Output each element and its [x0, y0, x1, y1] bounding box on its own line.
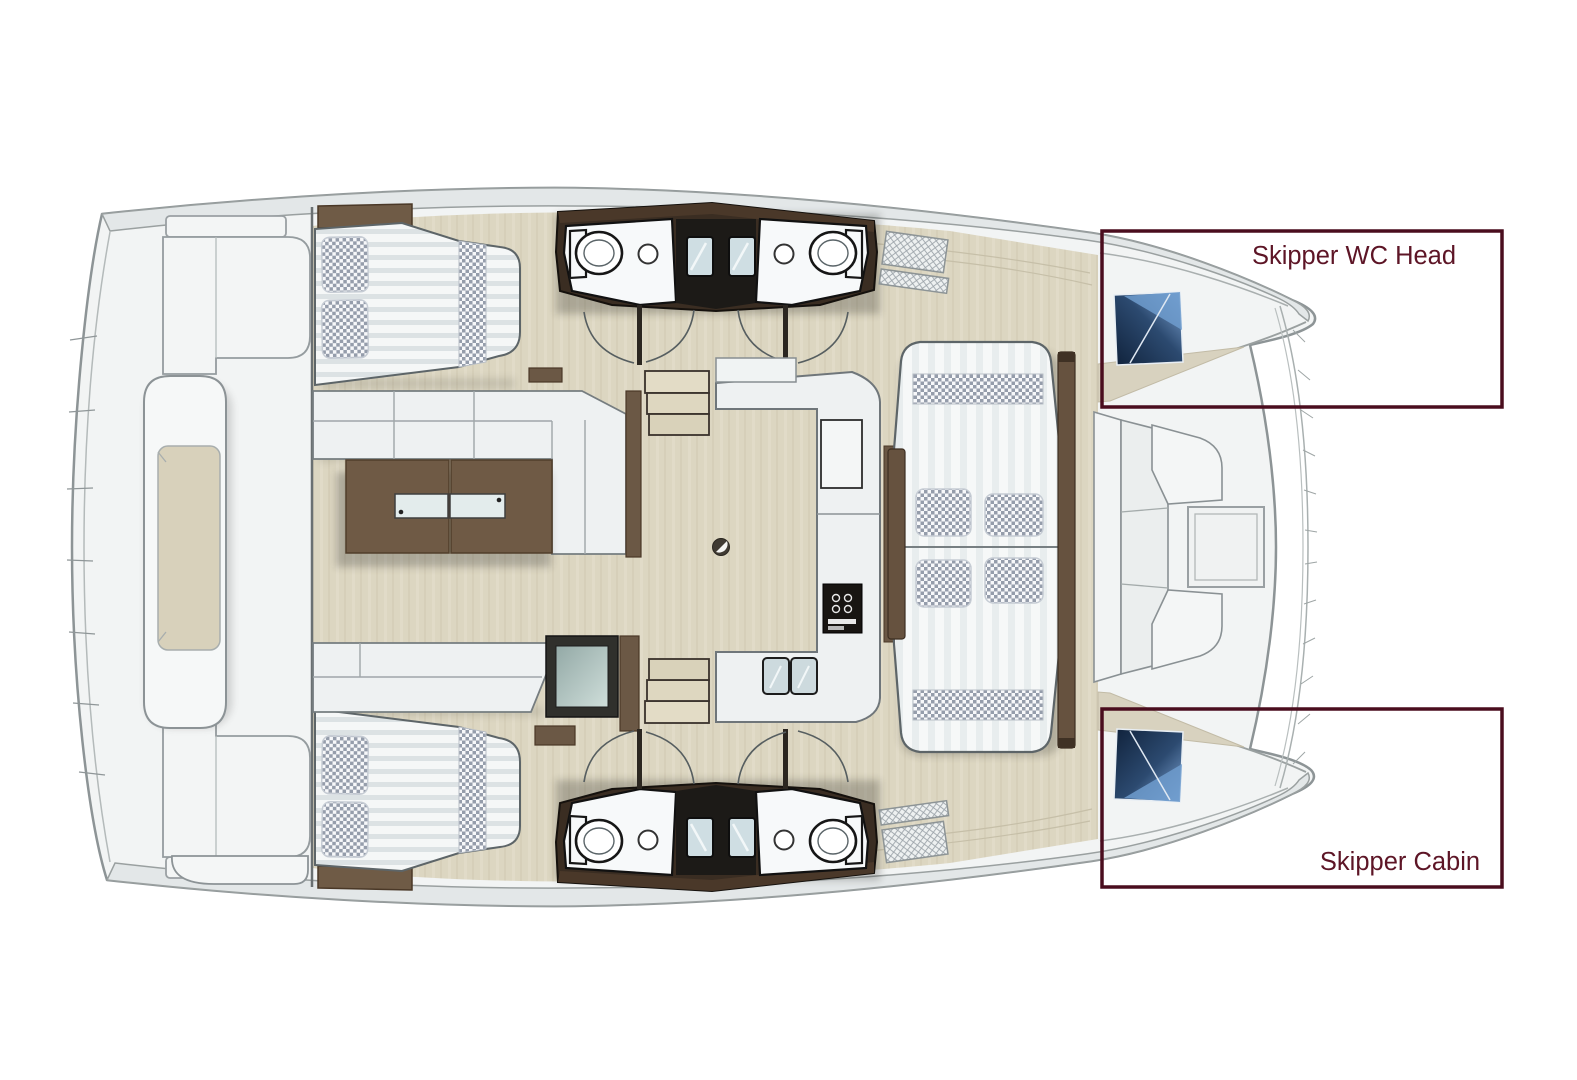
svg-text:Skipper Cabin: Skipper Cabin — [1320, 848, 1480, 876]
svg-text:Skipper WC Head: Skipper WC Head — [1252, 242, 1456, 270]
